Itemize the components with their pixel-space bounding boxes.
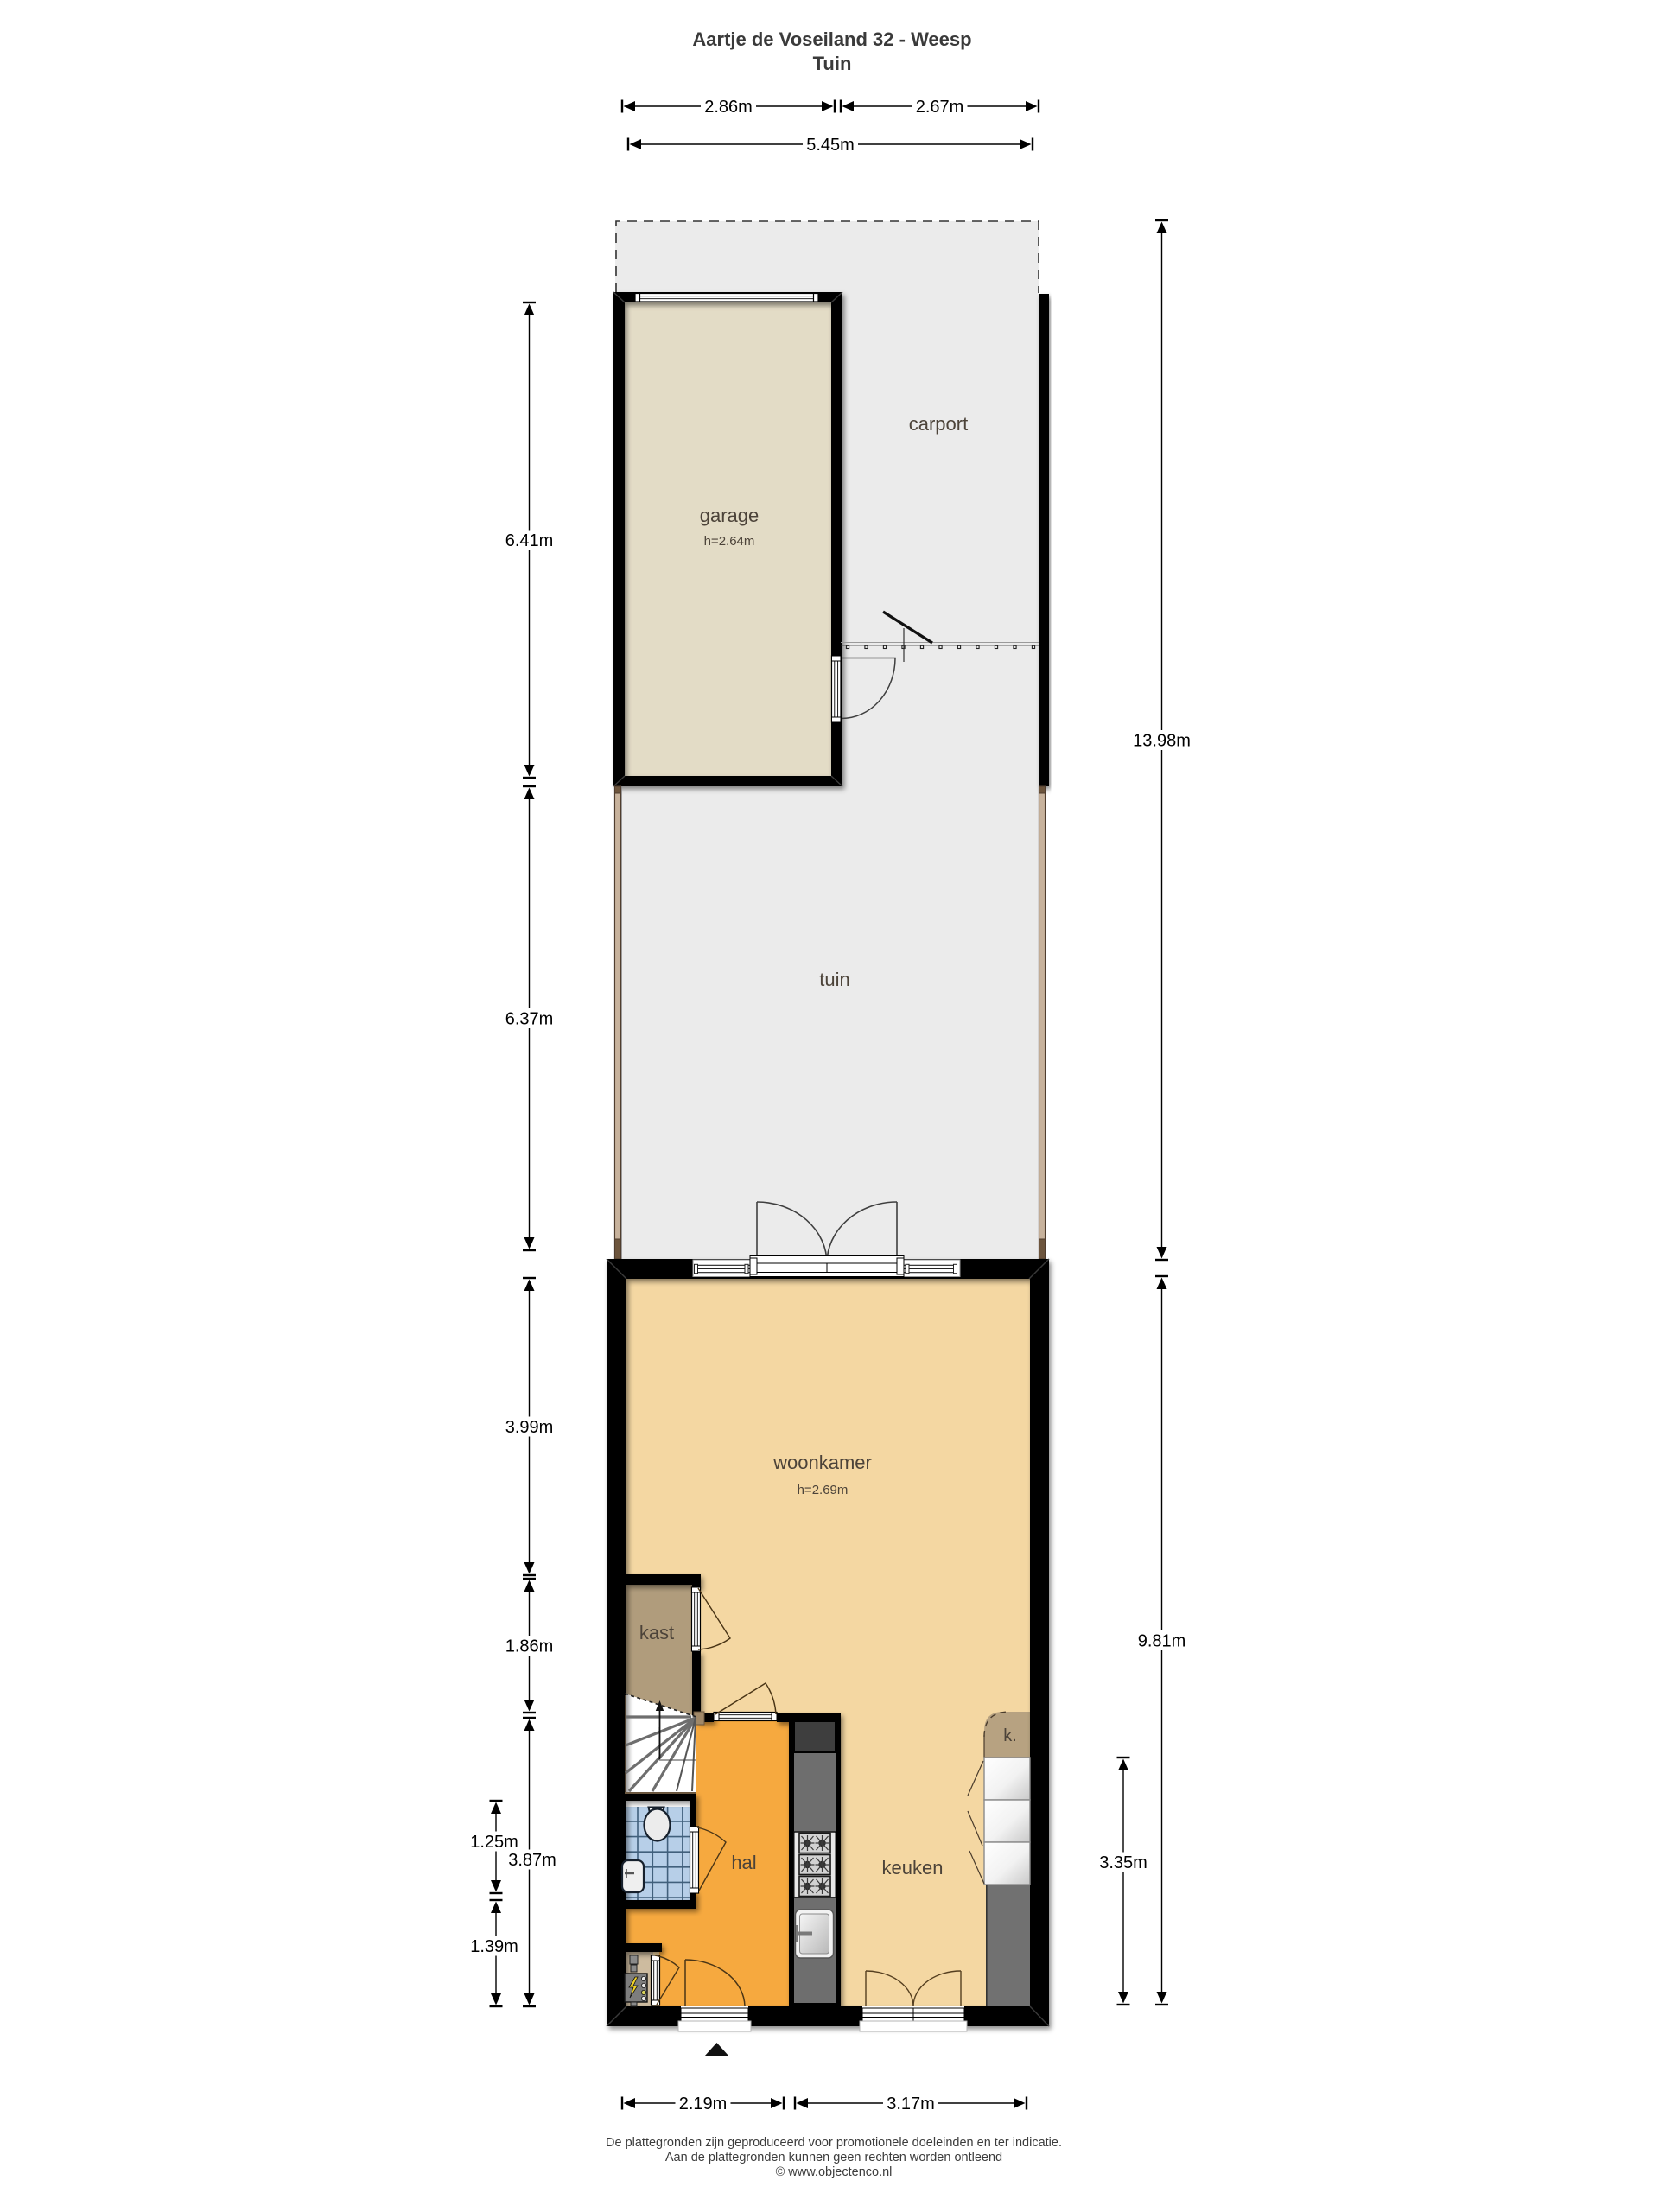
svg-text:h=2.64m: h=2.64m bbox=[704, 534, 755, 549]
svg-text:Tuin: Tuin bbox=[813, 53, 852, 74]
svg-text:6.37m: 6.37m bbox=[505, 1010, 554, 1029]
svg-text:9.81m: 9.81m bbox=[1138, 1632, 1186, 1651]
svg-text:Aartje de Voseiland 32 - Weesp: Aartje de Voseiland 32 - Weesp bbox=[692, 29, 971, 50]
svg-text:Aan de plattegronden kunnen ge: Aan de plattegronden kunnen geen rechten… bbox=[665, 2151, 1002, 2164]
svg-text:3.87m: 3.87m bbox=[508, 1851, 556, 1870]
svg-text:kast: kast bbox=[639, 1622, 674, 1643]
svg-text:h=2.69m: h=2.69m bbox=[798, 1483, 849, 1497]
svg-text:3.17m: 3.17m bbox=[887, 2094, 935, 2113]
svg-text:5.45m: 5.45m bbox=[806, 136, 855, 155]
svg-text:3.99m: 3.99m bbox=[505, 1418, 554, 1437]
svg-text:garage: garage bbox=[700, 505, 760, 526]
svg-text:© www.objectenco.nl: © www.objectenco.nl bbox=[776, 2165, 893, 2179]
svg-text:1.39m: 1.39m bbox=[470, 1937, 518, 1956]
svg-text:De plattegronden zijn geproduc: De plattegronden zijn geproduceerd voor … bbox=[606, 2136, 1062, 2150]
svg-text:woonkamer: woonkamer bbox=[772, 1452, 872, 1473]
svg-text:3.35m: 3.35m bbox=[1099, 1853, 1147, 1872]
svg-text:1.86m: 1.86m bbox=[505, 1637, 554, 1656]
svg-text:2.86m: 2.86m bbox=[704, 98, 753, 117]
svg-text:13.98m: 13.98m bbox=[1133, 732, 1191, 751]
svg-text:2.67m: 2.67m bbox=[916, 98, 964, 117]
svg-text:2.19m: 2.19m bbox=[679, 2094, 728, 2113]
svg-text:tuin: tuin bbox=[819, 969, 849, 990]
svg-text:1.25m: 1.25m bbox=[470, 1833, 518, 1852]
svg-text:carport: carport bbox=[909, 413, 968, 435]
svg-text:k.: k. bbox=[1003, 1726, 1017, 1745]
svg-text:6.41m: 6.41m bbox=[505, 531, 554, 550]
svg-text:keuken: keuken bbox=[882, 1857, 944, 1878]
svg-text:hal: hal bbox=[731, 1852, 756, 1873]
